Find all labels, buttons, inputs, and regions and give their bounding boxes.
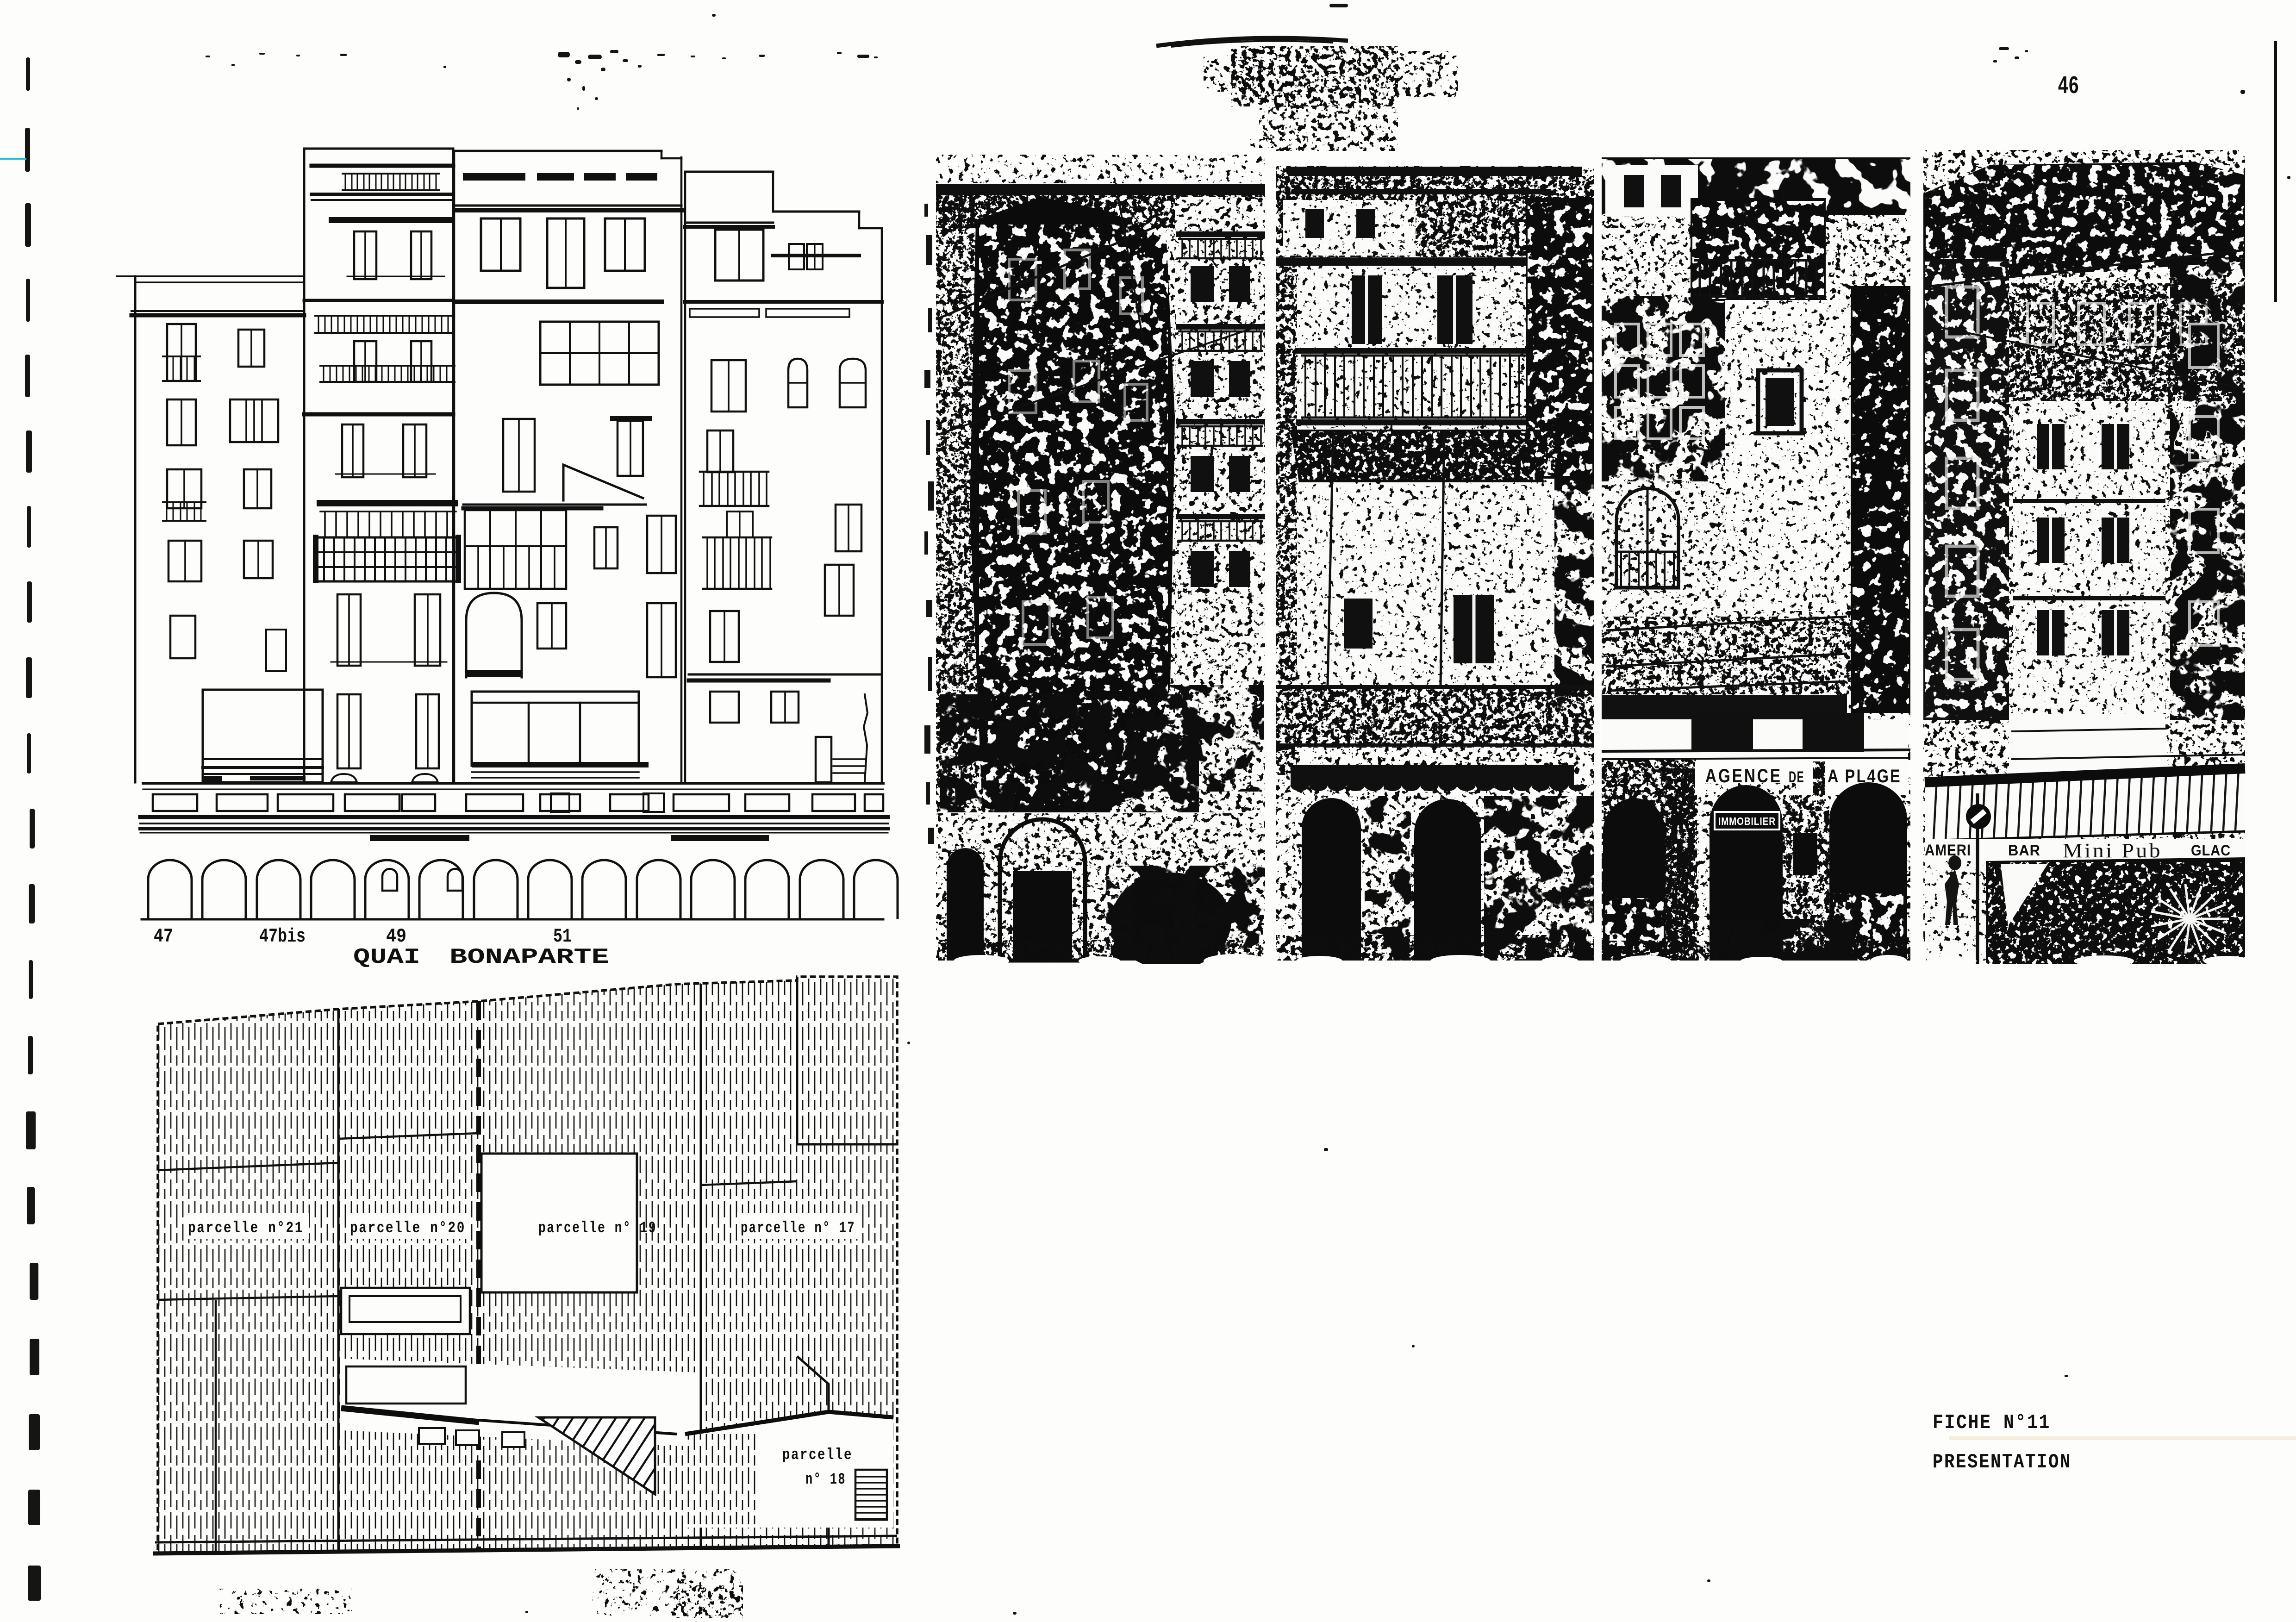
- svg-text:parcelle n°20: parcelle n°20: [350, 1220, 466, 1237]
- svg-text:AMERI: AMERI: [1925, 842, 1971, 859]
- svg-text:BONAPARTE: BONAPARTE: [449, 945, 609, 969]
- svg-text:parcelle n°21: parcelle n°21: [188, 1220, 304, 1237]
- svg-text:parcelle: parcelle: [782, 1447, 853, 1464]
- svg-text:GLAC: GLAC: [2191, 842, 2231, 859]
- svg-text:parcelle n° 19: parcelle n° 19: [538, 1220, 657, 1237]
- svg-text:47: 47: [154, 925, 173, 948]
- svg-text:n° 18: n° 18: [805, 1471, 846, 1489]
- svg-text:FICHE N°11: FICHE N°11: [1933, 1411, 2051, 1435]
- svg-text:PRESENTATION: PRESENTATION: [1933, 1451, 2071, 1474]
- svg-text:51: 51: [553, 925, 572, 948]
- svg-text:AGENCE: AGENCE: [1705, 765, 1782, 786]
- svg-text:47bis: 47bis: [259, 925, 306, 948]
- svg-text:parcelle n° 17: parcelle n° 17: [741, 1220, 855, 1237]
- svg-text:49: 49: [386, 925, 406, 948]
- svg-text:46: 46: [2058, 72, 2079, 99]
- svg-text:Mini Pub: Mini Pub: [2063, 839, 2162, 862]
- svg-text:BAR: BAR: [2008, 842, 2040, 859]
- svg-text:QUAI: QUAI: [353, 945, 420, 969]
- svg-text:IMMOBILIER: IMMOBILIER: [1718, 815, 1776, 827]
